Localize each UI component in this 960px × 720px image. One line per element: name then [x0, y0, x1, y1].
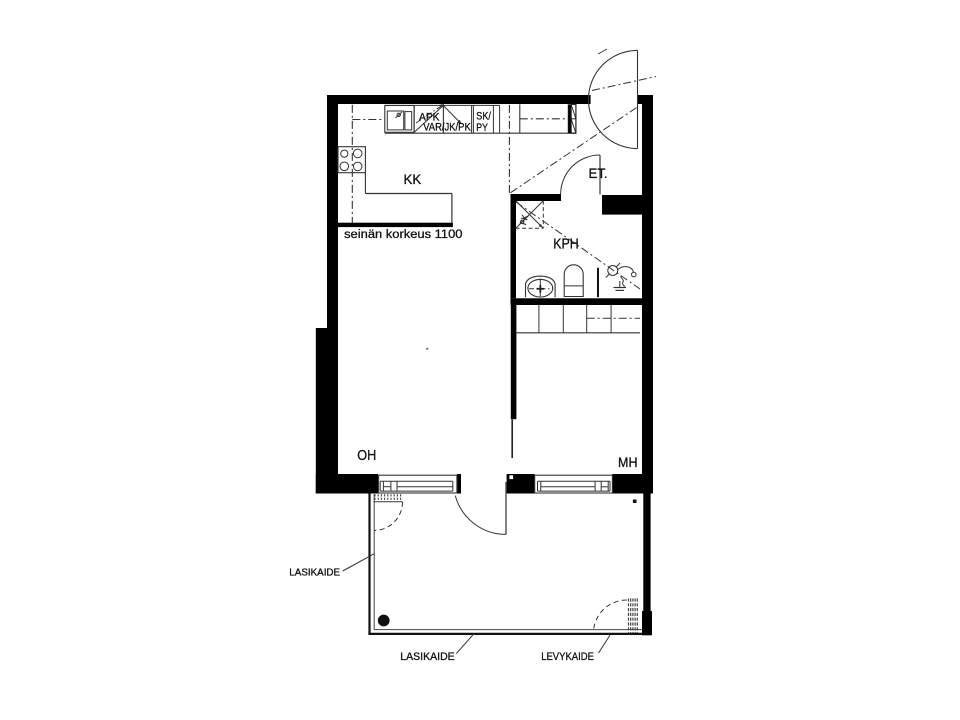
svg-text:SK/: SK/ — [476, 111, 491, 123]
svg-text:KPH: KPH — [553, 235, 578, 252]
svg-text:VAR/JK/PK: VAR/JK/PK — [423, 122, 471, 134]
svg-text:LASIKAIDE: LASIKAIDE — [289, 568, 340, 579]
svg-text:seinän korkeus 1100: seinän korkeus 1100 — [344, 227, 463, 241]
svg-text:OH: OH — [357, 447, 376, 464]
svg-text:LASIKAIDE: LASIKAIDE — [400, 651, 454, 663]
svg-text:ET.: ET. — [589, 166, 608, 181]
svg-text:MH: MH — [618, 455, 638, 471]
svg-text:KK: KK — [404, 171, 422, 187]
svg-text:LEVYKAIDE: LEVYKAIDE — [541, 651, 594, 663]
svg-text:PY: PY — [476, 122, 488, 134]
